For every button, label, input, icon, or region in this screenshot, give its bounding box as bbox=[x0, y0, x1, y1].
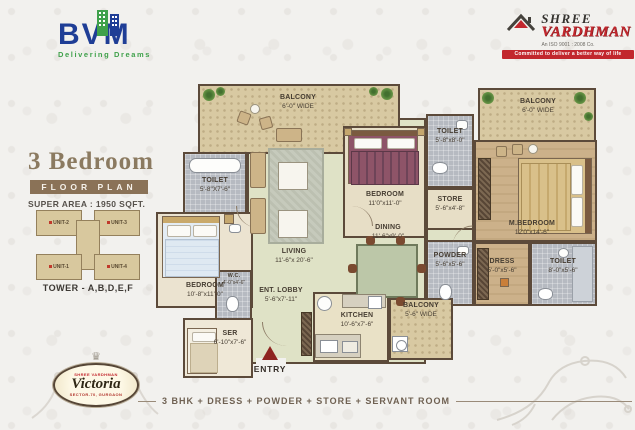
room-label-bedroom-2: BEDROOM11'0"x11'-0" bbox=[352, 191, 418, 208]
bvm-tagline: Delivering Dreams bbox=[58, 50, 188, 59]
room-label-dress: DRESS5'-0"x5'-6" bbox=[476, 258, 528, 275]
unit-marker bbox=[49, 221, 52, 224]
dining-chair bbox=[417, 264, 426, 273]
washbasin bbox=[229, 224, 241, 233]
floor-plan-poster: BVM Delivering Dreams SHREE bbox=[0, 0, 635, 430]
tower-key-plan: UNIT-2 UNIT-3 UNIT-1 UNIT-4 bbox=[36, 208, 140, 282]
shoe-cabinet bbox=[301, 312, 312, 356]
bed bbox=[348, 130, 418, 184]
headboard bbox=[163, 217, 219, 223]
divider bbox=[138, 401, 156, 402]
bed bbox=[162, 216, 220, 278]
room-label-dining: DINING11'-6"x9'-0" bbox=[352, 224, 424, 241]
buildings-icon bbox=[94, 8, 124, 38]
armchair bbox=[496, 146, 507, 157]
washing-machine bbox=[392, 336, 408, 352]
room-label-ent-lobby: ENT. LOBBY5'-6"x7'-11" bbox=[248, 287, 314, 304]
plant bbox=[203, 89, 215, 101]
shree-vardhman-logo: SHREE VARDHMAN An ISO 9001 : 2008 Co. Co… bbox=[502, 12, 634, 59]
appliance bbox=[368, 296, 382, 309]
victoria-badge: SHREE VARDHMAN Victoria SECTOR-70, GURGA… bbox=[53, 363, 139, 407]
headboard bbox=[585, 159, 591, 233]
tower-unit-3: UNIT-3 bbox=[94, 210, 140, 236]
round-table bbox=[528, 144, 538, 154]
blanket bbox=[190, 343, 218, 373]
room-label-balcony-top-right: BALCONY6'-0" WIDE bbox=[498, 98, 578, 115]
entry-label: ENTRY bbox=[240, 364, 300, 374]
washer-door bbox=[396, 340, 407, 351]
washbasin bbox=[558, 248, 569, 258]
page-title: 3 Bedroom bbox=[28, 148, 156, 176]
room-label-toilet-1: TOILET5'-8"X7'-6" bbox=[188, 177, 242, 194]
toilet-pan bbox=[439, 284, 452, 300]
bathtub bbox=[189, 158, 241, 173]
tower-unit-4: UNIT-4 bbox=[94, 254, 140, 280]
room-label-store: STORE5'-6"x4'-8" bbox=[428, 196, 472, 213]
footer-strip: 3 BHK + DRESS + POWDER + STORE + SERVANT… bbox=[138, 396, 632, 406]
room-label-toilet-2: TOILET5'-8"x8'-0" bbox=[428, 128, 472, 145]
pillow bbox=[193, 225, 217, 237]
fridge bbox=[317, 296, 332, 311]
dress-stool bbox=[500, 278, 509, 287]
plant bbox=[584, 112, 593, 121]
divider bbox=[456, 401, 632, 402]
room-label-balcony-bottom: BALCONY5'-6" WIDE bbox=[392, 302, 450, 319]
coffee-table bbox=[278, 210, 308, 238]
pillow bbox=[354, 138, 382, 149]
unit-marker bbox=[107, 265, 110, 268]
tower-unit-1: UNIT-1 bbox=[36, 254, 82, 280]
victoria-name: Victoria bbox=[71, 377, 120, 393]
room-label-powder: POWDER5'-6"x5'-6" bbox=[428, 252, 472, 269]
room-label-toilet-3: TOILET8'-0"x5'-6" bbox=[534, 258, 592, 275]
bvm-logo: BVM Delivering Dreams bbox=[58, 20, 188, 59]
pillow bbox=[571, 165, 583, 195]
stove bbox=[342, 341, 358, 353]
sofa bbox=[250, 152, 266, 188]
toilet-pan bbox=[538, 288, 553, 300]
shree-ribbon-text: Committed to deliver a better way of lif… bbox=[502, 50, 634, 59]
tower-label: TOWER - A,B,D,E,F bbox=[8, 283, 168, 293]
plant bbox=[381, 88, 393, 100]
room-label-wc: W.C.4'-0"x4'-6" bbox=[216, 273, 252, 286]
sofa bbox=[250, 198, 266, 234]
crown-icon: ♛ bbox=[50, 352, 142, 363]
shree-iso-text: An ISO 9001 : 2008 Co. bbox=[502, 42, 634, 48]
side-table bbox=[344, 128, 352, 136]
room-label-master-bedroom: M.BEDROOM12'0"x14'-6" bbox=[496, 220, 568, 237]
footer-text: 3 BHK + DRESS + POWDER + STORE + SERVANT… bbox=[162, 396, 450, 406]
house-icon bbox=[505, 12, 539, 38]
room-label-kitchen: KITCHEN10'-6"x7'-6" bbox=[330, 312, 384, 329]
plant bbox=[216, 87, 225, 96]
room-label-living: LIVING11'-6"x 20'-6" bbox=[258, 248, 330, 265]
flourish-ornament bbox=[492, 348, 635, 428]
coffee-table bbox=[278, 162, 308, 190]
kitchen-counter bbox=[315, 334, 361, 358]
plant bbox=[482, 92, 494, 104]
kitchen-counter bbox=[342, 294, 386, 308]
unit-marker bbox=[49, 265, 52, 268]
pillow bbox=[387, 138, 415, 149]
wardrobe bbox=[478, 158, 491, 220]
dining-chair bbox=[348, 264, 357, 273]
side-table bbox=[224, 214, 234, 224]
headboard bbox=[349, 131, 417, 136]
victoria-emblem: ♛ SHREE VARDHMAN Victoria SECTOR-70, GUR… bbox=[50, 352, 142, 407]
pillow bbox=[167, 225, 191, 237]
shree-line2: VARDHMAN bbox=[541, 25, 631, 41]
plant bbox=[369, 87, 378, 96]
room-label-servant: SER6'-10"x7'-6" bbox=[208, 330, 252, 347]
pillow bbox=[571, 197, 583, 227]
blanket bbox=[351, 151, 419, 185]
blanket bbox=[165, 239, 219, 277]
sofa bbox=[276, 128, 302, 142]
unit-marker bbox=[107, 221, 110, 224]
floor-plan-banner: FLOOR PLAN bbox=[30, 180, 148, 194]
side-table bbox=[417, 128, 425, 136]
sink bbox=[320, 340, 338, 353]
toilet-pan bbox=[432, 162, 448, 174]
victoria-location: SECTOR-70, GURGAON bbox=[70, 393, 123, 397]
armchair bbox=[512, 144, 523, 155]
room-label-balcony-top-left: BALCONY6'-0" WIDE bbox=[248, 94, 348, 111]
dining-table bbox=[356, 244, 418, 298]
entry-arrow-icon bbox=[262, 346, 278, 360]
